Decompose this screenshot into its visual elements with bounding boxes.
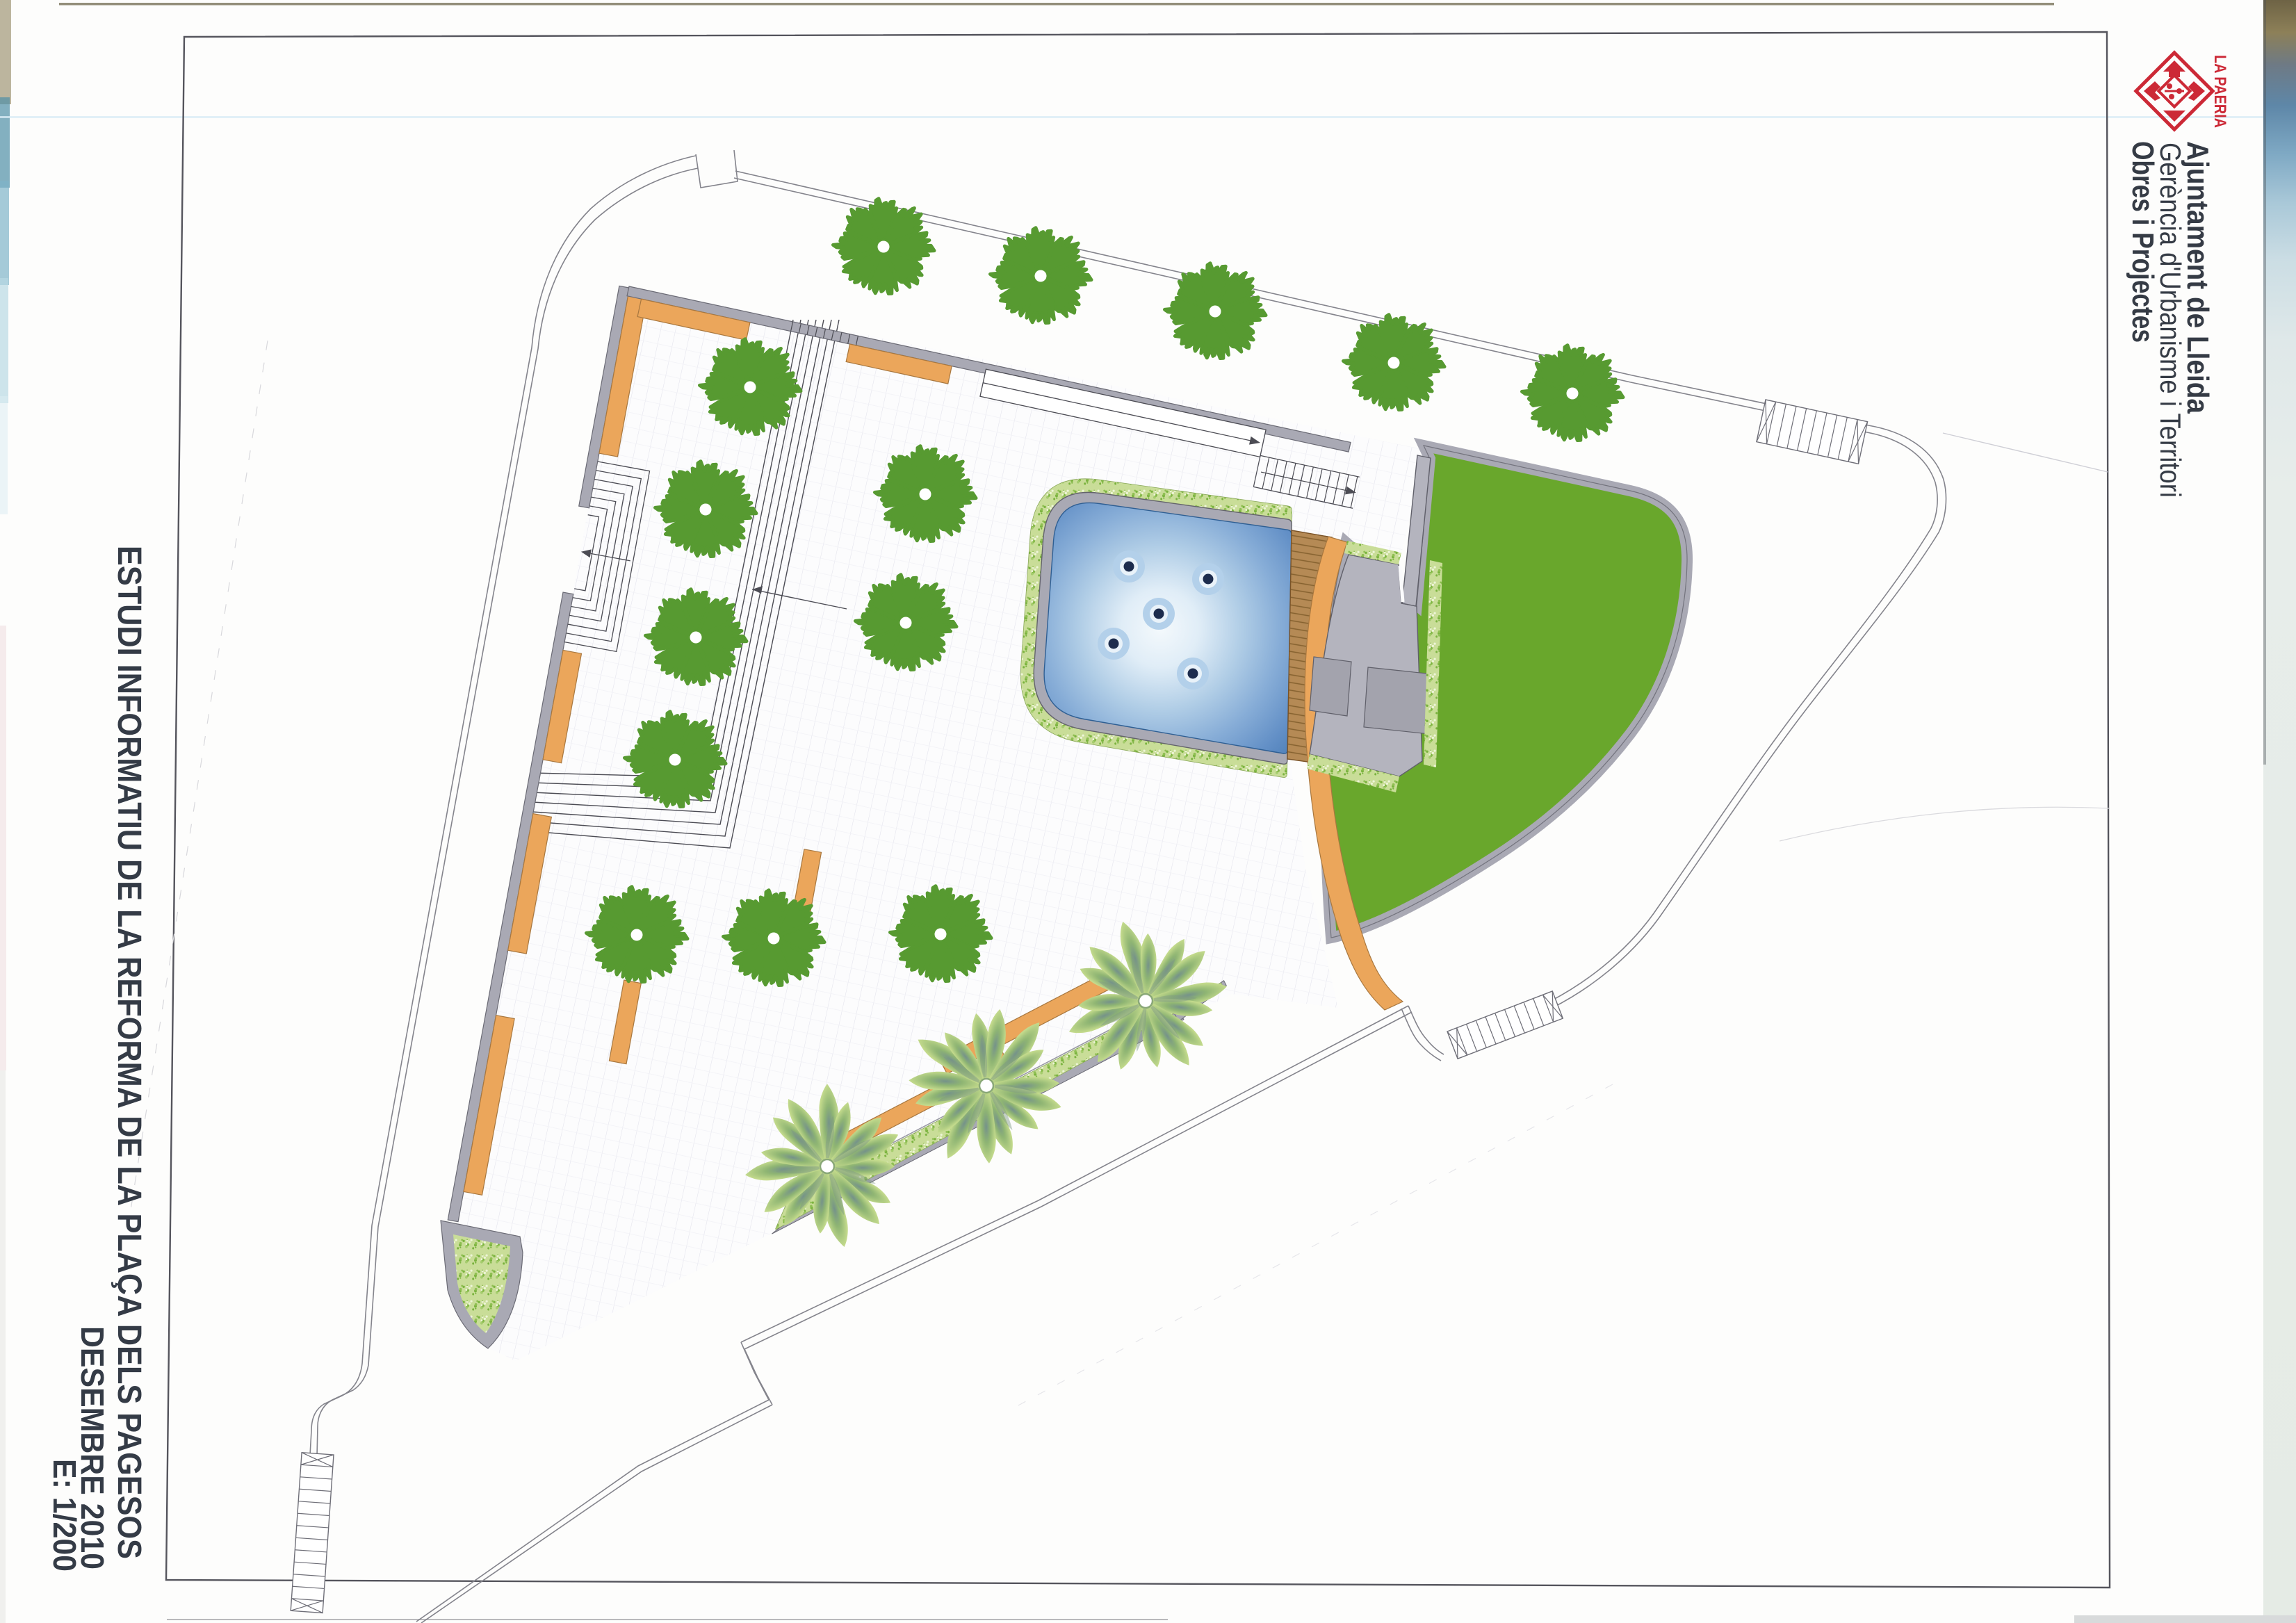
svg-text:ESTUDI INFORMATIU DE LA REFORM: ESTUDI INFORMATIU DE LA REFORMA DE LA PL… (111, 546, 147, 1559)
svg-text:E: 1/200: E: 1/200 (47, 1459, 83, 1572)
svg-text:LA PAERIA: LA PAERIA (2210, 55, 2229, 128)
svg-text:Obres i Projectes: Obres i Projectes (2126, 141, 2160, 343)
